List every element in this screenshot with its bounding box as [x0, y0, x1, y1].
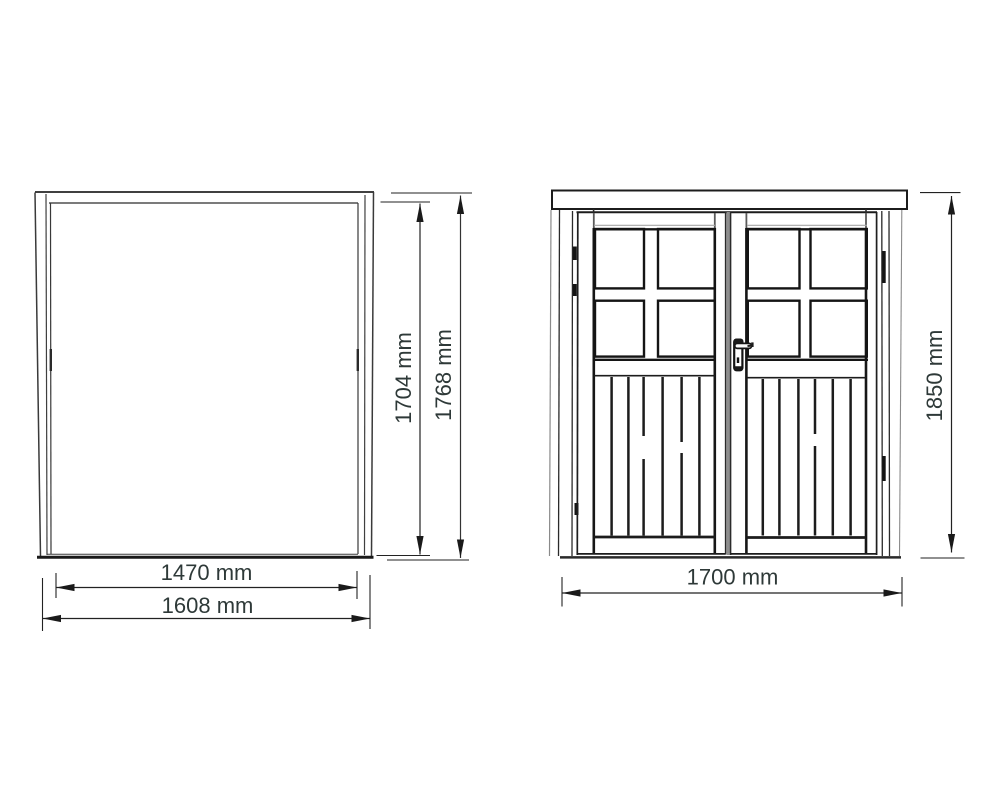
svg-text:1608 mm: 1608 mm	[162, 593, 254, 618]
svg-text:1850 mm: 1850 mm	[922, 330, 947, 422]
svg-text:1470 mm: 1470 mm	[161, 560, 253, 585]
svg-text:1704 mm: 1704 mm	[391, 332, 416, 424]
svg-text:1768 mm: 1768 mm	[431, 329, 456, 421]
svg-text:1700 mm: 1700 mm	[687, 565, 779, 590]
